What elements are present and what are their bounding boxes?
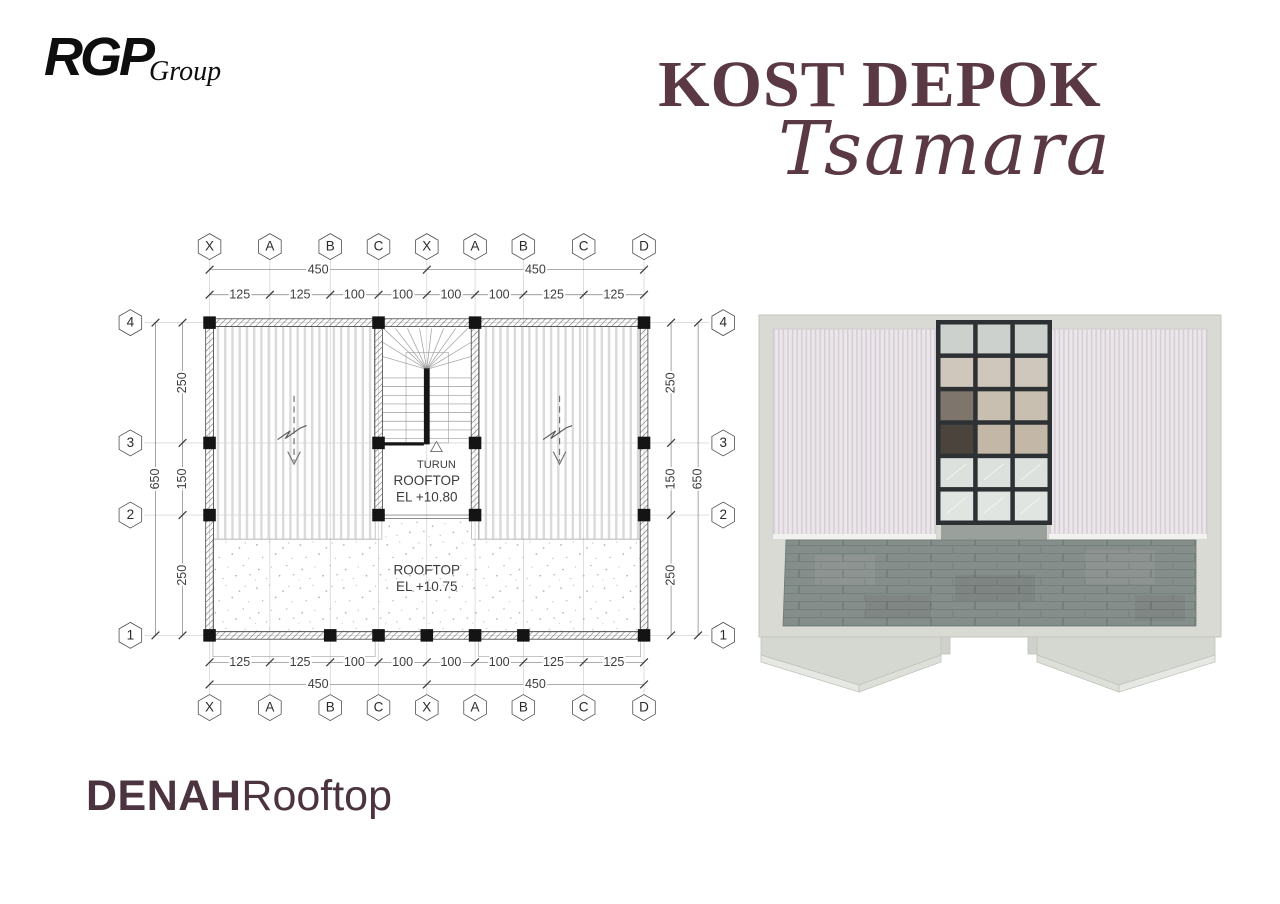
- skylight-pane: [1015, 425, 1048, 454]
- grid-bubble: 2: [119, 502, 142, 528]
- grid-bubble: C: [367, 234, 390, 260]
- grid-bubble-label: A: [265, 700, 274, 715]
- dimension-label: 650: [148, 469, 162, 490]
- grid-bubble-label: C: [374, 700, 384, 715]
- skylight-pane: [1015, 492, 1048, 521]
- column-marker: [372, 509, 385, 522]
- grid-bubble: A: [259, 234, 282, 260]
- grid-bubble: B: [319, 695, 342, 721]
- dimension-label: 100: [489, 655, 510, 669]
- column-marker: [638, 629, 651, 642]
- skylight-pane: [978, 458, 1011, 487]
- skylight-pane: [941, 492, 974, 521]
- grid-bubble-label: 3: [127, 435, 135, 450]
- grid-bubble: C: [572, 695, 595, 721]
- grid-bubble-label: 1: [719, 627, 727, 642]
- skylight-pane: [1015, 458, 1048, 487]
- grid-bubble-label: B: [326, 239, 335, 254]
- render-roof-right: [1049, 329, 1207, 538]
- grid-bubble-label: 4: [127, 315, 135, 330]
- column-marker: [517, 629, 530, 642]
- grid-bubble-label: C: [579, 239, 589, 254]
- dimension-label: 100: [344, 655, 365, 669]
- grid-bubble: D: [633, 234, 656, 260]
- dimension-label: 100: [392, 655, 413, 669]
- grid-bubble-label: D: [639, 239, 649, 254]
- wall-top: [206, 319, 648, 327]
- logo-secondary-text: Group: [149, 56, 221, 87]
- grid-bubble-label: B: [519, 239, 528, 254]
- skylight-pane: [1015, 391, 1048, 420]
- grid-bubble: 1: [119, 622, 142, 648]
- grid-bubble-label: X: [422, 700, 431, 715]
- sheet-caption: DENAHRooftop: [86, 772, 392, 821]
- column-marker: [421, 629, 434, 642]
- grid-bubble-label: D: [639, 700, 649, 715]
- skylight-pane: [1015, 325, 1048, 354]
- lower-rooftop-label: ROOFTOP: [394, 563, 461, 578]
- dimension-column: 250150250: [175, 319, 189, 639]
- column-marker: [203, 629, 216, 642]
- render-roof-left: [773, 329, 936, 538]
- dimension-column: 650: [690, 319, 704, 639]
- skylight-pane: [941, 425, 974, 454]
- grid-bubble-label: B: [519, 700, 528, 715]
- stair-center-wall: [424, 368, 430, 444]
- column-marker: [203, 509, 216, 522]
- column-marker: [372, 316, 385, 329]
- dimension-label: 100: [392, 288, 413, 302]
- render-skylight: [936, 320, 1052, 525]
- column-marker: [638, 509, 651, 522]
- wall-left: [206, 319, 214, 639]
- dimension-label: 100: [344, 288, 365, 302]
- column-marker: [638, 437, 651, 450]
- column-marker: [469, 629, 482, 642]
- rgp-group-logo: RGPGroup: [44, 26, 224, 88]
- wall-core-right: [471, 319, 479, 519]
- grid-bubble: D: [633, 695, 656, 721]
- column-marker: [203, 437, 216, 450]
- skylight-pane: [978, 325, 1011, 354]
- dimension-label: 650: [690, 469, 704, 490]
- sheet-caption-regular: Rooftop: [241, 772, 392, 820]
- dimension-label: 250: [663, 372, 677, 393]
- grid-bubble: B: [512, 234, 535, 260]
- dimension-label: 125: [290, 288, 311, 302]
- grid-bubble-label: C: [579, 700, 589, 715]
- grid-bubble-label: 1: [127, 627, 135, 642]
- grid-bubble-label: 3: [719, 435, 727, 450]
- skylight-pane: [941, 391, 974, 420]
- wall-right: [640, 319, 648, 639]
- grid-bubble: X: [415, 234, 438, 260]
- grid-bubble: 1: [712, 622, 735, 648]
- dimension-column: 250150250: [663, 319, 677, 639]
- grid-bubble-label: C: [374, 239, 384, 254]
- grid-bubble: A: [464, 695, 487, 721]
- dimension-label: 250: [663, 565, 677, 586]
- grid-bubble-label: X: [422, 239, 431, 254]
- dimension-column: 650: [148, 319, 162, 639]
- skylight-pane: [978, 358, 1011, 387]
- rooftop-3d-render: [755, 305, 1225, 695]
- grid-bubble: 3: [119, 430, 142, 456]
- dimension-label: 250: [175, 565, 189, 586]
- project-title: KOST DEPOK Tsamara: [620, 52, 1140, 186]
- column-marker: [469, 316, 482, 329]
- dimension-label: 125: [229, 655, 250, 669]
- column-marker: [638, 316, 651, 329]
- render-roof-fascia-right: [1049, 534, 1207, 539]
- skylight-pane: [941, 358, 974, 387]
- grid-bubble-label: A: [265, 239, 274, 254]
- grid-bubble-label: A: [471, 700, 480, 715]
- grid-bubble: 3: [712, 430, 735, 456]
- dimension-label: 125: [543, 655, 564, 669]
- column-marker: [372, 437, 385, 450]
- column-marker: [372, 629, 385, 642]
- grid-bubble: 4: [712, 310, 735, 336]
- dimension-label: 150: [663, 469, 677, 490]
- render-roof-fascia-left: [773, 534, 936, 539]
- grid-bubble: C: [367, 695, 390, 721]
- skylight-pane: [978, 391, 1011, 420]
- dimension-label: 100: [440, 655, 461, 669]
- project-title-script: Tsamara: [750, 112, 1140, 186]
- dimension-label: 100: [440, 288, 461, 302]
- grid-bubble: 4: [119, 310, 142, 336]
- grid-bubble-label: B: [326, 700, 335, 715]
- upper-rooftop-elevation: EL +10.80: [396, 490, 457, 505]
- dimension-label: 125: [290, 655, 311, 669]
- grid-bubble: 2: [712, 502, 735, 528]
- grid-bubble-label: X: [205, 700, 214, 715]
- grid-bubble: A: [464, 234, 487, 260]
- skylight-pane: [978, 492, 1011, 521]
- dimension-label: 100: [489, 288, 510, 302]
- dimension-label: 450: [308, 677, 329, 691]
- grid-bubble: B: [512, 695, 535, 721]
- dimension-label: 450: [525, 677, 546, 691]
- render-terrace-stem: [941, 523, 1047, 541]
- column-marker: [324, 629, 337, 642]
- sheet-caption-bold: DENAH: [86, 772, 241, 820]
- column-marker: [203, 316, 216, 329]
- grid-bubble-label: 2: [719, 507, 727, 522]
- grid-bubble: X: [415, 695, 438, 721]
- dimension-label: 450: [525, 263, 546, 277]
- skylight-pane: [941, 458, 974, 487]
- upper-rooftop-label: ROOFTOP: [394, 473, 461, 488]
- dimension-label: 150: [175, 469, 189, 490]
- render-front-parapet: [761, 637, 1215, 692]
- logo-primary-text: RGP: [44, 27, 152, 87]
- dimension-label: 125: [543, 288, 564, 302]
- grid-bubble: X: [198, 695, 221, 721]
- column-marker: [469, 437, 482, 450]
- lower-rooftop-elevation: EL +10.75: [396, 579, 457, 594]
- skylight-pane: [1015, 358, 1048, 387]
- skylight-pane: [941, 325, 974, 354]
- dimension-label: 250: [175, 372, 189, 393]
- skylight-pane: [978, 425, 1011, 454]
- grid-bubble: X: [198, 234, 221, 260]
- column-marker: [469, 509, 482, 522]
- grid-bubble-label: 2: [127, 507, 135, 522]
- grid-bubble: C: [572, 234, 595, 260]
- grid-bubble: B: [319, 234, 342, 260]
- grid-bubble: A: [259, 695, 282, 721]
- dimension-label: 125: [229, 288, 250, 302]
- stair-down-label: TURUN: [417, 459, 456, 471]
- dimension-label: 125: [603, 288, 624, 302]
- dimension-label: 450: [308, 263, 329, 277]
- dimension-label: 125: [603, 655, 624, 669]
- grid-bubble-label: A: [471, 239, 480, 254]
- grid-bubble-label: 4: [719, 315, 727, 330]
- wall-core-left: [375, 319, 383, 519]
- grid-bubble-label: X: [205, 239, 214, 254]
- floor-plan-drawing: TURUN ROOFTOP EL +10.80 ROOFTOP EL +10.7…: [113, 224, 743, 734]
